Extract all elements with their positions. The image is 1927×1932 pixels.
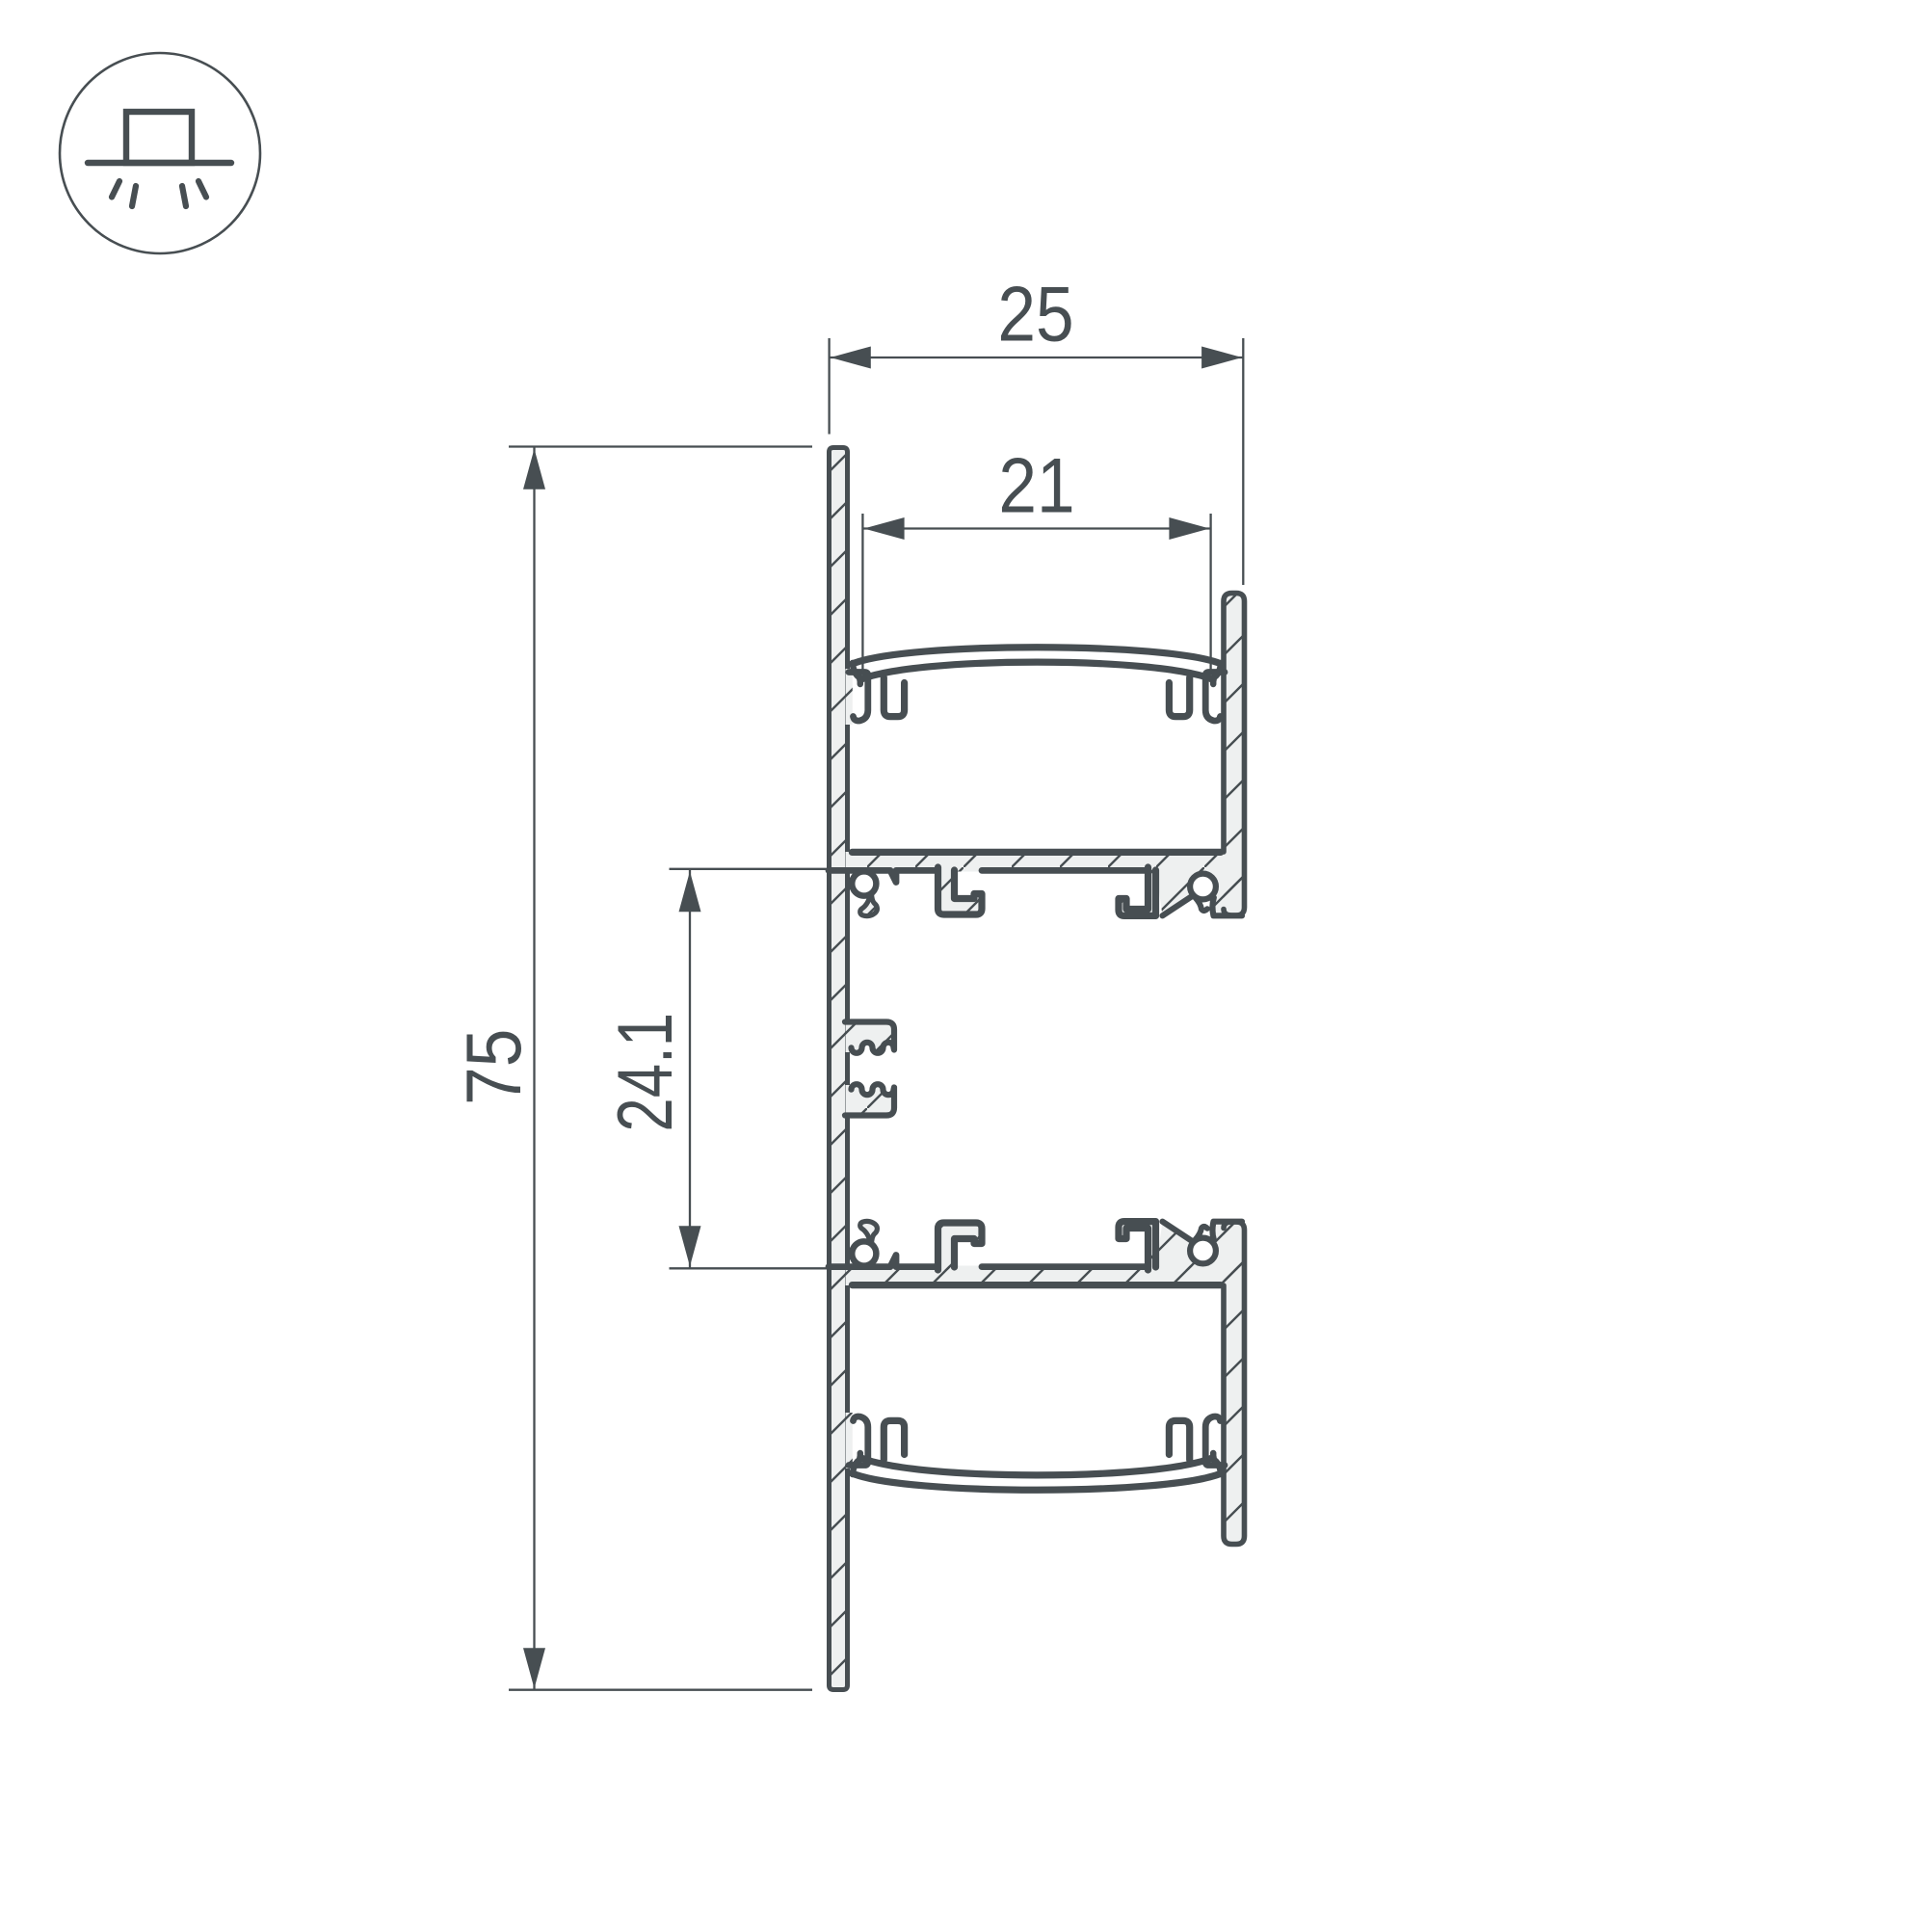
svg-text:21: 21	[998, 442, 1074, 529]
svg-text:75: 75	[451, 1029, 538, 1105]
svg-text:25: 25	[997, 271, 1073, 357]
svg-text:24.1: 24.1	[602, 1013, 689, 1132]
